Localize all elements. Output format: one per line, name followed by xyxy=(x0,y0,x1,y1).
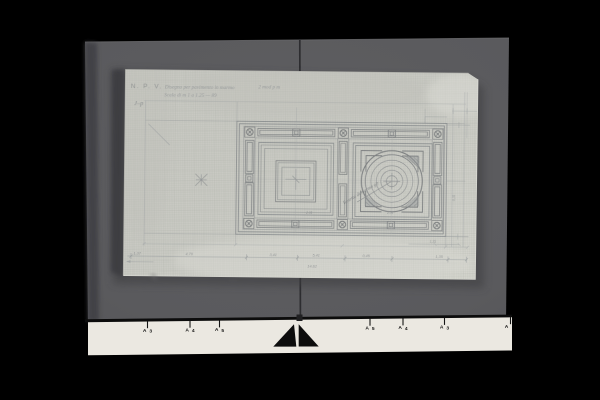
svg-text:A: A xyxy=(365,326,369,332)
svg-text:5: 5 xyxy=(372,326,375,332)
svg-text:3: 3 xyxy=(446,325,449,331)
svg-text:5,41: 5,41 xyxy=(312,254,319,258)
svg-text:Disegno per pavimento in marmo: Disegno per pavimento in marmo xyxy=(164,84,235,91)
svg-text:1,35: 1,35 xyxy=(435,255,443,259)
svg-text:2.54: 2.54 xyxy=(387,211,394,215)
svg-text:4: 4 xyxy=(192,328,195,334)
svg-text:Scala di m 1 a 1.25 — 89: Scala di m 1 a 1.25 — 89 xyxy=(164,92,217,99)
svg-text:A: A xyxy=(440,325,444,331)
svg-text:1,37: 1,37 xyxy=(133,252,141,256)
svg-text:3: 3 xyxy=(149,329,152,335)
svg-text:2.04: 2.04 xyxy=(306,211,313,215)
svg-text:14,62: 14,62 xyxy=(307,264,317,268)
svg-text:4,70: 4,70 xyxy=(185,252,193,256)
svg-text:3,41: 3,41 xyxy=(269,253,276,257)
svg-text:A: A xyxy=(505,324,509,330)
svg-text:A: A xyxy=(143,328,147,334)
svg-text:2 mod p m: 2 mod p m xyxy=(258,84,280,90)
svg-text:0,45: 0,45 xyxy=(362,254,370,258)
svg-text:A: A xyxy=(398,325,402,331)
svg-text:N. P. V.: N. P. V. xyxy=(131,83,163,90)
svg-text:4: 4 xyxy=(405,326,408,332)
svg-text:5: 5 xyxy=(221,328,224,334)
svg-text:A: A xyxy=(215,327,219,333)
svg-text:J–p: J–p xyxy=(134,100,143,107)
svg-text:A: A xyxy=(185,328,189,334)
